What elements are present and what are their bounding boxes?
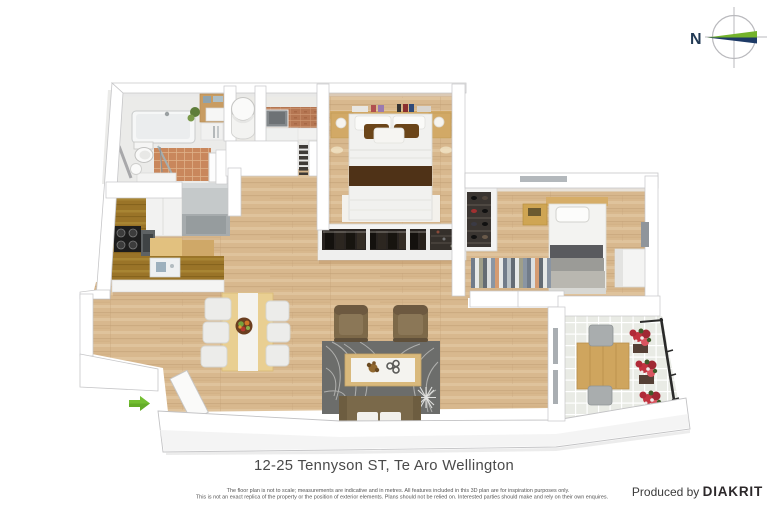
- svg-text:This is not an exact replica o: This is not an exact replica of the prop…: [196, 494, 609, 500]
- svg-text:N: N: [690, 31, 702, 48]
- svg-text:12-25 Tennyson ST, Te Aro Well: 12-25 Tennyson ST, Te Aro Wellington: [254, 458, 514, 474]
- svg-text:Produced by DIAKRIT: Produced by DIAKRIT: [632, 484, 763, 499]
- svg-text:The floor plan is not to scale: The floor plan is not to scale; measurem…: [227, 488, 570, 494]
